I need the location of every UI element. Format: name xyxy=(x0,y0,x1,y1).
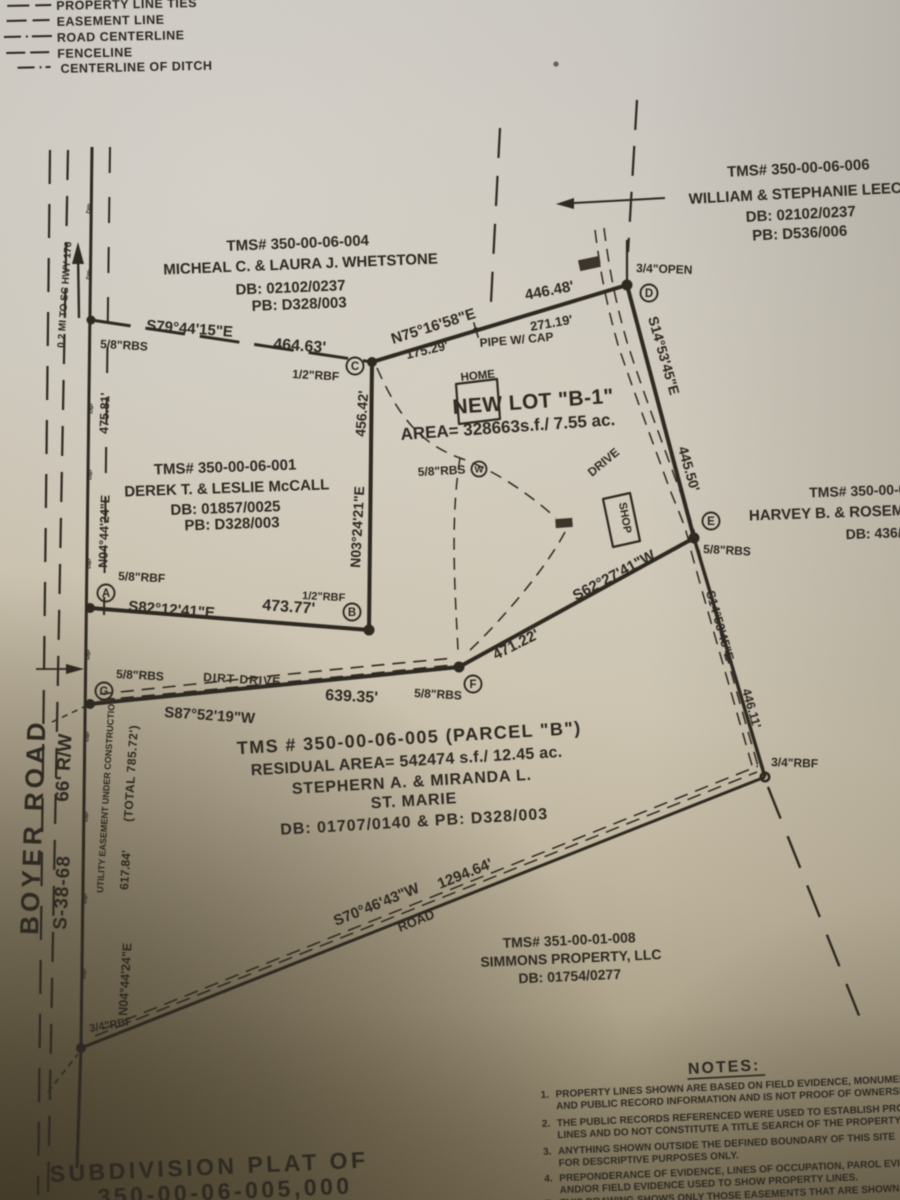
svg-text:S-38-68: S-38-68 xyxy=(50,855,75,931)
svg-text:1/2"RBF: 1/2"RBF xyxy=(292,367,340,383)
svg-text:5/8"RBS: 5/8"RBS xyxy=(417,463,465,479)
svg-text:5/8"RBS: 5/8"RBS xyxy=(414,686,462,702)
svg-text:B: B xyxy=(348,607,356,619)
svg-text:E: E xyxy=(707,516,715,528)
svg-text:PB: D328/003: PB: D328/003 xyxy=(184,514,280,534)
svg-text:1/2"RBF: 1/2"RBF xyxy=(302,590,346,604)
svg-text:F: F xyxy=(469,679,476,691)
svg-text:1.: 1. xyxy=(540,1090,549,1101)
svg-text:639.35': 639.35' xyxy=(325,687,379,707)
svg-text:5/8"RBS: 5/8"RBS xyxy=(703,542,751,558)
svg-text:N04°44'24"E: N04°44'24"E xyxy=(96,495,113,568)
svg-text:ROAD CENTERLINE: ROAD CENTERLINE xyxy=(57,28,185,45)
svg-text:FENCELINE: FENCELINE xyxy=(57,45,133,61)
svg-text:D: D xyxy=(645,288,653,300)
svg-text:4.: 4. xyxy=(544,1173,553,1184)
svg-text:A: A xyxy=(102,588,110,600)
svg-text:C: C xyxy=(351,361,359,373)
svg-text:G: G xyxy=(100,686,109,698)
svg-text:W: W xyxy=(475,465,484,476)
svg-text:DB: 436/: DB: 436/ xyxy=(845,524,900,542)
svg-text:66' R/W: 66' R/W xyxy=(52,733,77,802)
svg-text:5/8"RBS: 5/8"RBS xyxy=(100,337,148,353)
svg-text:3/4"RBF: 3/4"RBF xyxy=(771,755,819,771)
svg-text:TMS# 350-00-0: TMS# 350-00-0 xyxy=(809,481,900,500)
svg-text:3/4"OPEN: 3/4"OPEN xyxy=(636,261,693,277)
svg-text:5/8"RBF: 5/8"RBF xyxy=(118,569,166,585)
svg-text:5/8"RBS: 5/8"RBS xyxy=(116,667,164,683)
svg-text:475.81': 475.81' xyxy=(97,392,112,434)
svg-text:3.: 3. xyxy=(543,1147,552,1158)
svg-text:2.: 2. xyxy=(542,1119,551,1130)
svg-text:617.84': 617.84' xyxy=(117,850,133,890)
svg-text:456.42': 456.42' xyxy=(352,390,371,437)
svg-text:EASEMENT LINE: EASEMENT LINE xyxy=(56,13,164,29)
